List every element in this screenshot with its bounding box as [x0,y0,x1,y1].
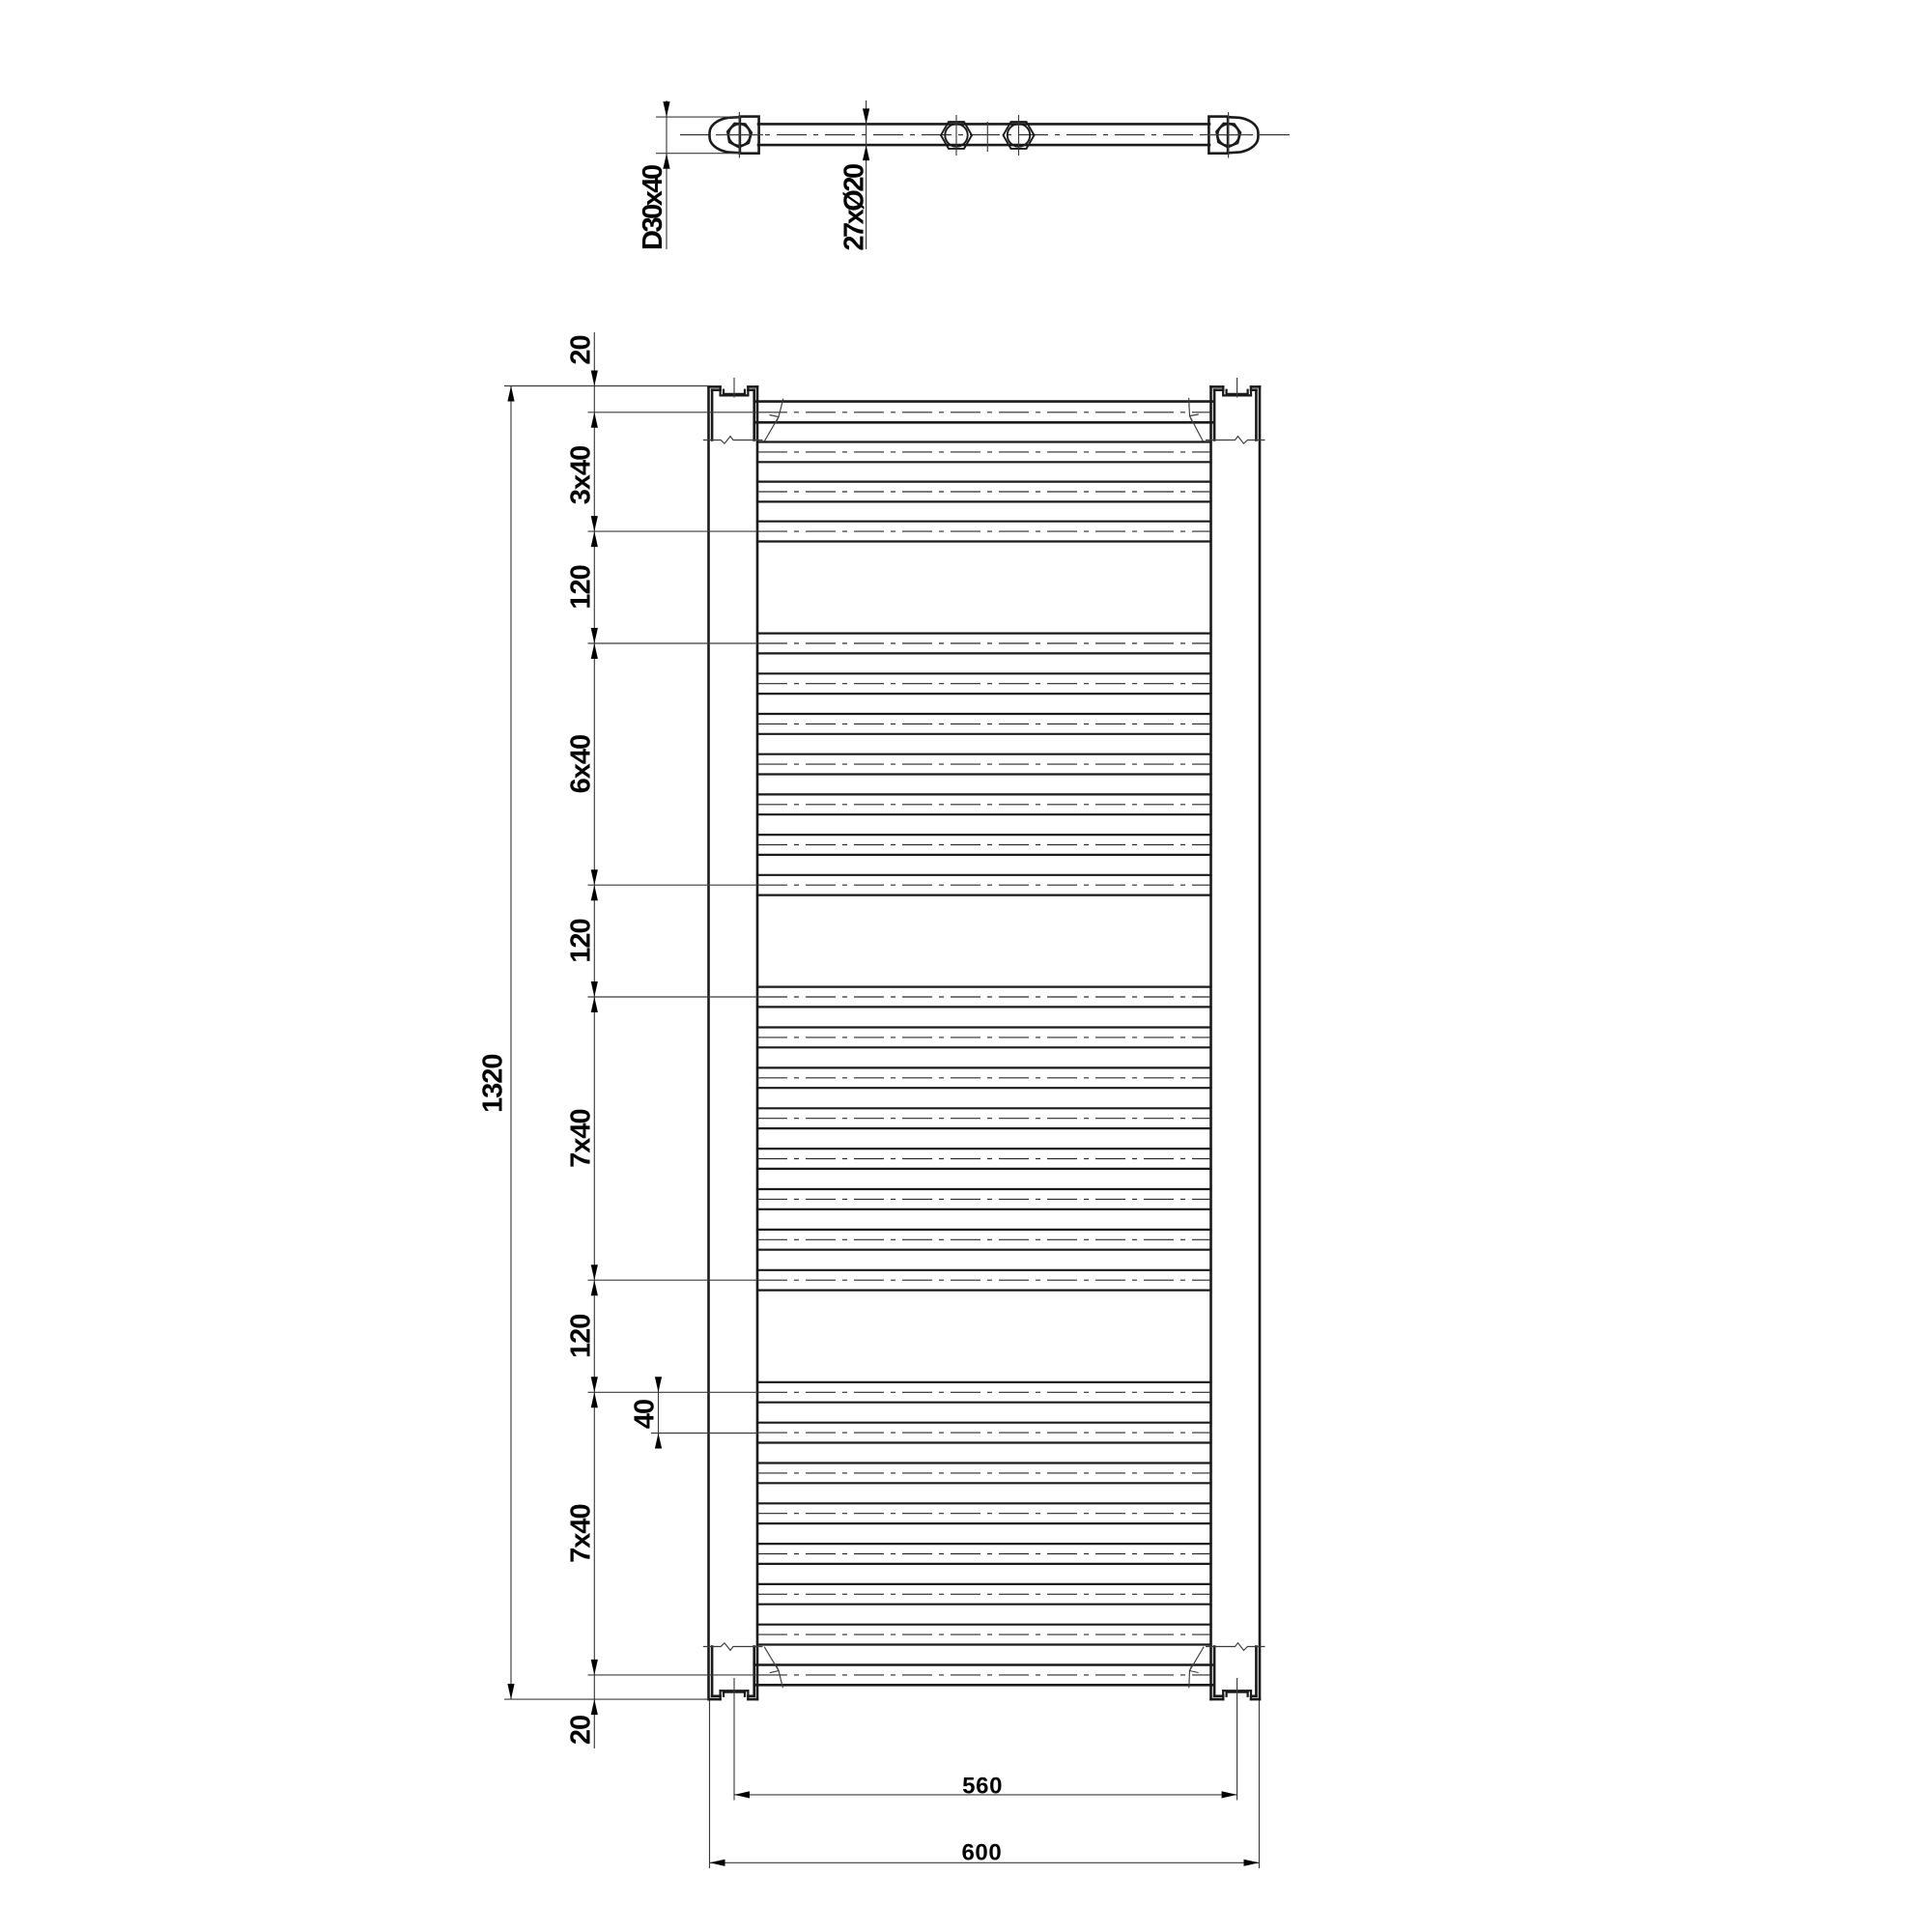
svg-text:1320: 1320 [478,1055,509,1114]
svg-text:560: 560 [962,1774,1003,1800]
svg-text:120: 120 [566,565,597,609]
svg-text:20: 20 [566,1716,597,1745]
svg-text:120: 120 [566,919,597,962]
svg-text:20: 20 [566,335,597,364]
svg-text:27xØ20: 27xØ20 [839,164,870,251]
svg-text:D30x40: D30x40 [638,165,668,250]
svg-text:3x40: 3x40 [566,446,597,505]
svg-text:6x40: 6x40 [566,735,597,794]
svg-text:600: 600 [961,1840,1002,1866]
svg-text:7x40: 7x40 [566,1109,597,1168]
svg-text:40: 40 [630,1400,661,1429]
svg-text:120: 120 [566,1315,597,1358]
svg-text:7x40: 7x40 [566,1504,597,1563]
